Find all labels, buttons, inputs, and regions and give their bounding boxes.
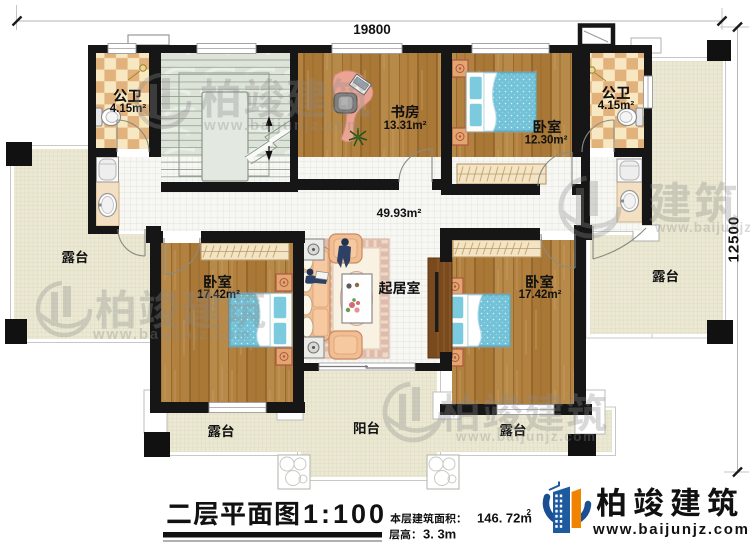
svg-text:www.baijunjz.com: www.baijunjz.com (455, 429, 597, 444)
svg-text:12.30m²: 12.30m² (525, 135, 568, 147)
svg-text:www.baijunjz.com: www.baijunjz.com (203, 117, 362, 134)
svg-text:www.baijunjz.com: www.baijunjz.com (654, 220, 750, 235)
svg-text:19800: 19800 (353, 22, 391, 37)
svg-text:4.15m²: 4.15m² (598, 100, 635, 112)
svg-text:www.baijunjz.com: www.baijunjz.com (592, 521, 750, 538)
svg-text:www.baijunjz.com: www.baijunjz.com (92, 326, 251, 343)
svg-text:17.42m²: 17.42m² (519, 289, 562, 301)
svg-text:13.31m²: 13.31m² (384, 120, 427, 132)
svg-text:146. 72m: 146. 72m (477, 511, 532, 526)
svg-text:49.93m²: 49.93m² (377, 206, 422, 220)
svg-text:1:100: 1:100 (303, 499, 387, 529)
svg-text:3. 3m: 3. 3m (423, 527, 456, 542)
svg-text:2: 2 (527, 508, 532, 517)
